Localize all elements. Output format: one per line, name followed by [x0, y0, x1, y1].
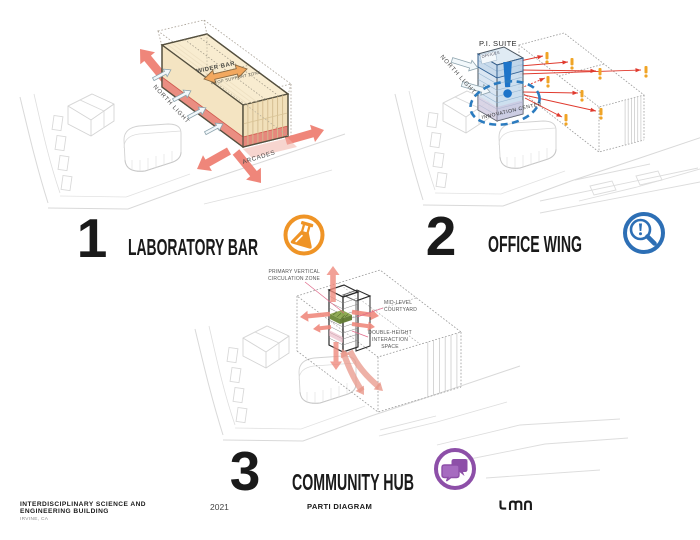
svg-text:CIRCULATION ZONE: CIRCULATION ZONE	[268, 276, 320, 282]
svg-text:COMMUNITY HUB: COMMUNITY HUB	[292, 469, 414, 495]
svg-text:OFFICE WING: OFFICE WING	[488, 231, 582, 257]
svg-text:3: 3	[230, 440, 261, 502]
svg-text:PARTI DIAGRAM: PARTI DIAGRAM	[307, 502, 372, 511]
svg-text:ENGINEERING BUILDING: ENGINEERING BUILDING	[20, 508, 109, 515]
svg-text:IRVINE, CA: IRVINE, CA	[20, 516, 49, 522]
svg-text:2: 2	[426, 205, 457, 267]
svg-text:2021: 2021	[210, 502, 229, 512]
svg-text:INTERACTION: INTERACTION	[372, 337, 408, 343]
svg-text:1: 1	[77, 207, 108, 269]
svg-text:MID-LEVEL: MID-LEVEL	[384, 300, 412, 306]
svg-text:LABORATORY BAR: LABORATORY BAR	[128, 234, 258, 260]
svg-text:COURTYARD: COURTYARD	[384, 307, 417, 313]
svg-text:SPACE: SPACE	[381, 344, 399, 350]
svg-text:PRIMARY VERTICAL: PRIMARY VERTICAL	[268, 269, 320, 275]
svg-text:P.I. SUITE: P.I. SUITE	[479, 39, 517, 48]
svg-text:DOUBLE-HEIGHT: DOUBLE-HEIGHT	[368, 330, 412, 336]
svg-text:INTERDISCIPLINARY SCIENCE AND: INTERDISCIPLINARY SCIENCE AND	[20, 501, 146, 508]
